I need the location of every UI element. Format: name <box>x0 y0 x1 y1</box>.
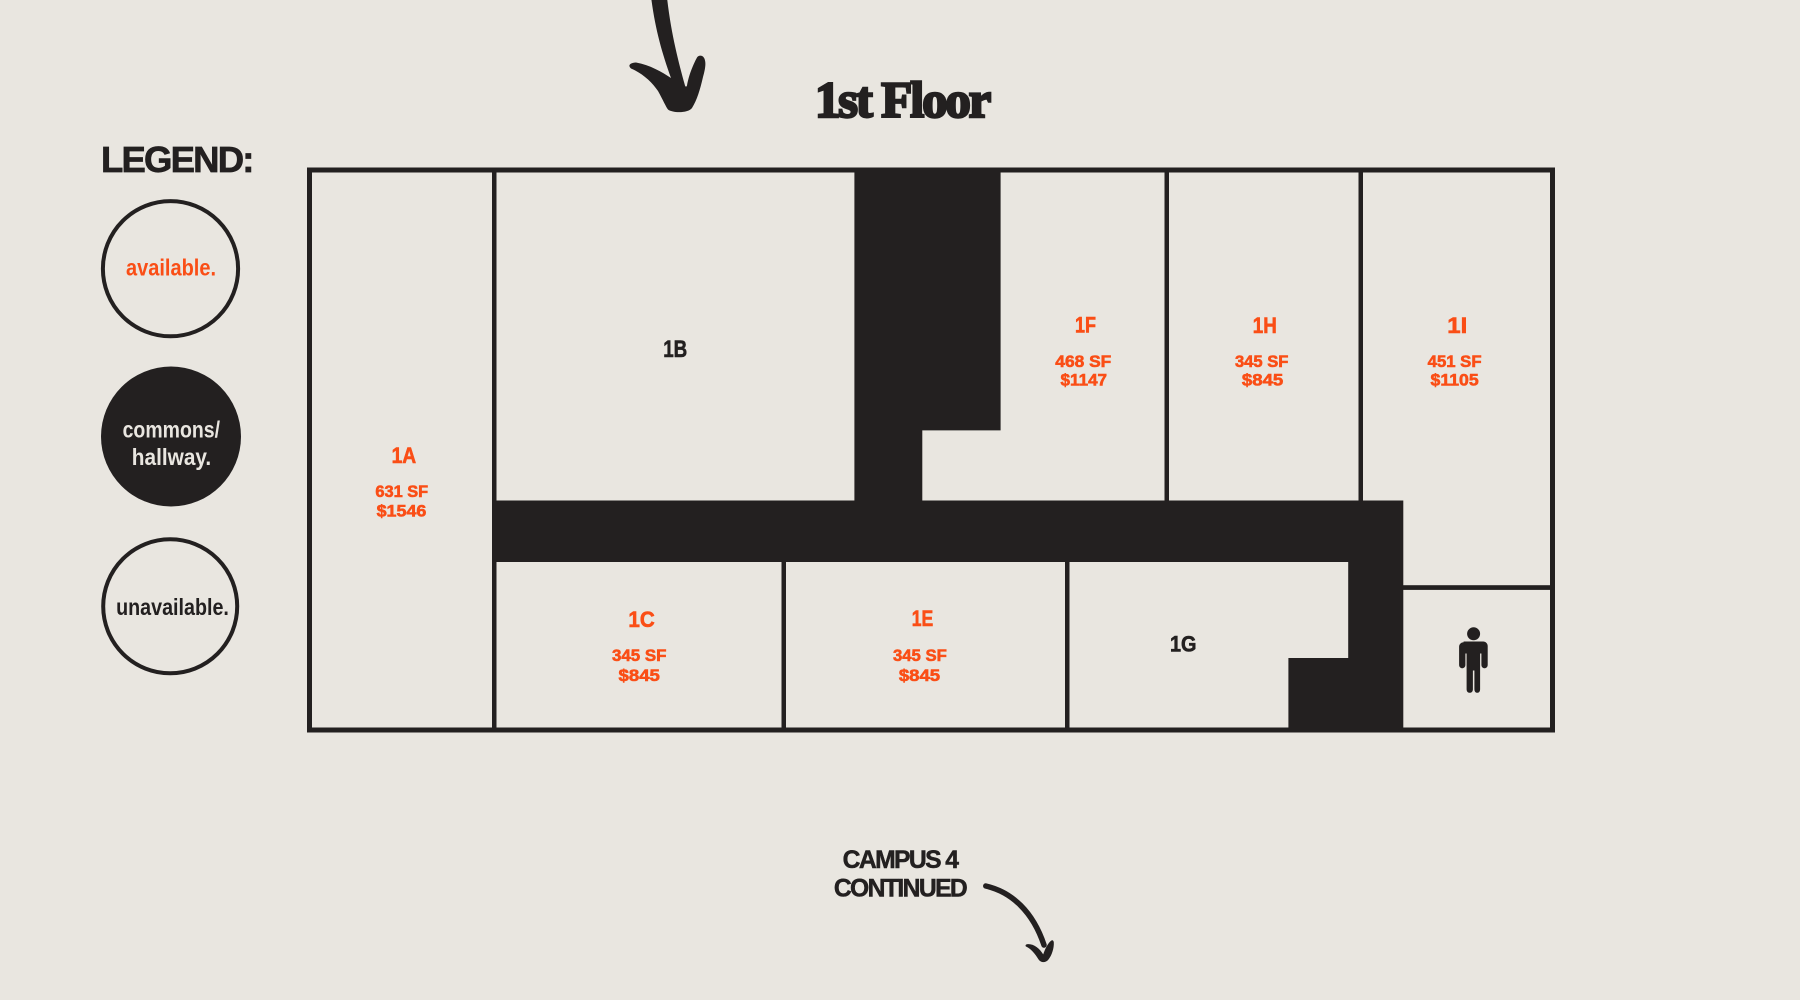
svg-text:1E: 1E <box>912 606 934 631</box>
svg-text:CAMPUS 4: CAMPUS 4 <box>843 847 960 874</box>
svg-text:LEGEND:: LEGEND: <box>101 139 253 180</box>
svg-text:451 SF: 451 SF <box>1428 352 1482 371</box>
svg-text:$1147: $1147 <box>1061 370 1108 389</box>
svg-text:1st Floor: 1st Floor <box>815 73 991 129</box>
svg-text:$1546: $1546 <box>377 502 427 521</box>
svg-text:CONTINUED: CONTINUED <box>834 876 967 903</box>
svg-text:345 SF: 345 SF <box>1235 352 1289 371</box>
svg-text:1I: 1I <box>1447 313 1467 338</box>
svg-text:$845: $845 <box>1242 370 1283 389</box>
svg-text:unavailable.: unavailable. <box>116 594 229 620</box>
svg-text:1C: 1C <box>628 607 655 632</box>
svg-text:available.: available. <box>126 254 216 280</box>
svg-text:631 SF: 631 SF <box>375 482 428 501</box>
svg-text:1H: 1H <box>1253 313 1277 338</box>
svg-text:345 SF: 345 SF <box>893 646 947 665</box>
svg-text:1G: 1G <box>1170 632 1197 657</box>
svg-text:$1105: $1105 <box>1431 370 1479 389</box>
svg-text:1F: 1F <box>1075 313 1096 338</box>
svg-text:1A: 1A <box>392 443 417 468</box>
svg-text:1B: 1B <box>663 336 687 363</box>
svg-text:hallway.: hallway. <box>132 444 211 470</box>
svg-text:commons/: commons/ <box>123 417 221 443</box>
svg-text:468 SF: 468 SF <box>1055 352 1111 371</box>
svg-text:345 SF: 345 SF <box>612 646 667 665</box>
svg-text:$845: $845 <box>899 666 940 685</box>
svg-text:$845: $845 <box>619 666 660 685</box>
